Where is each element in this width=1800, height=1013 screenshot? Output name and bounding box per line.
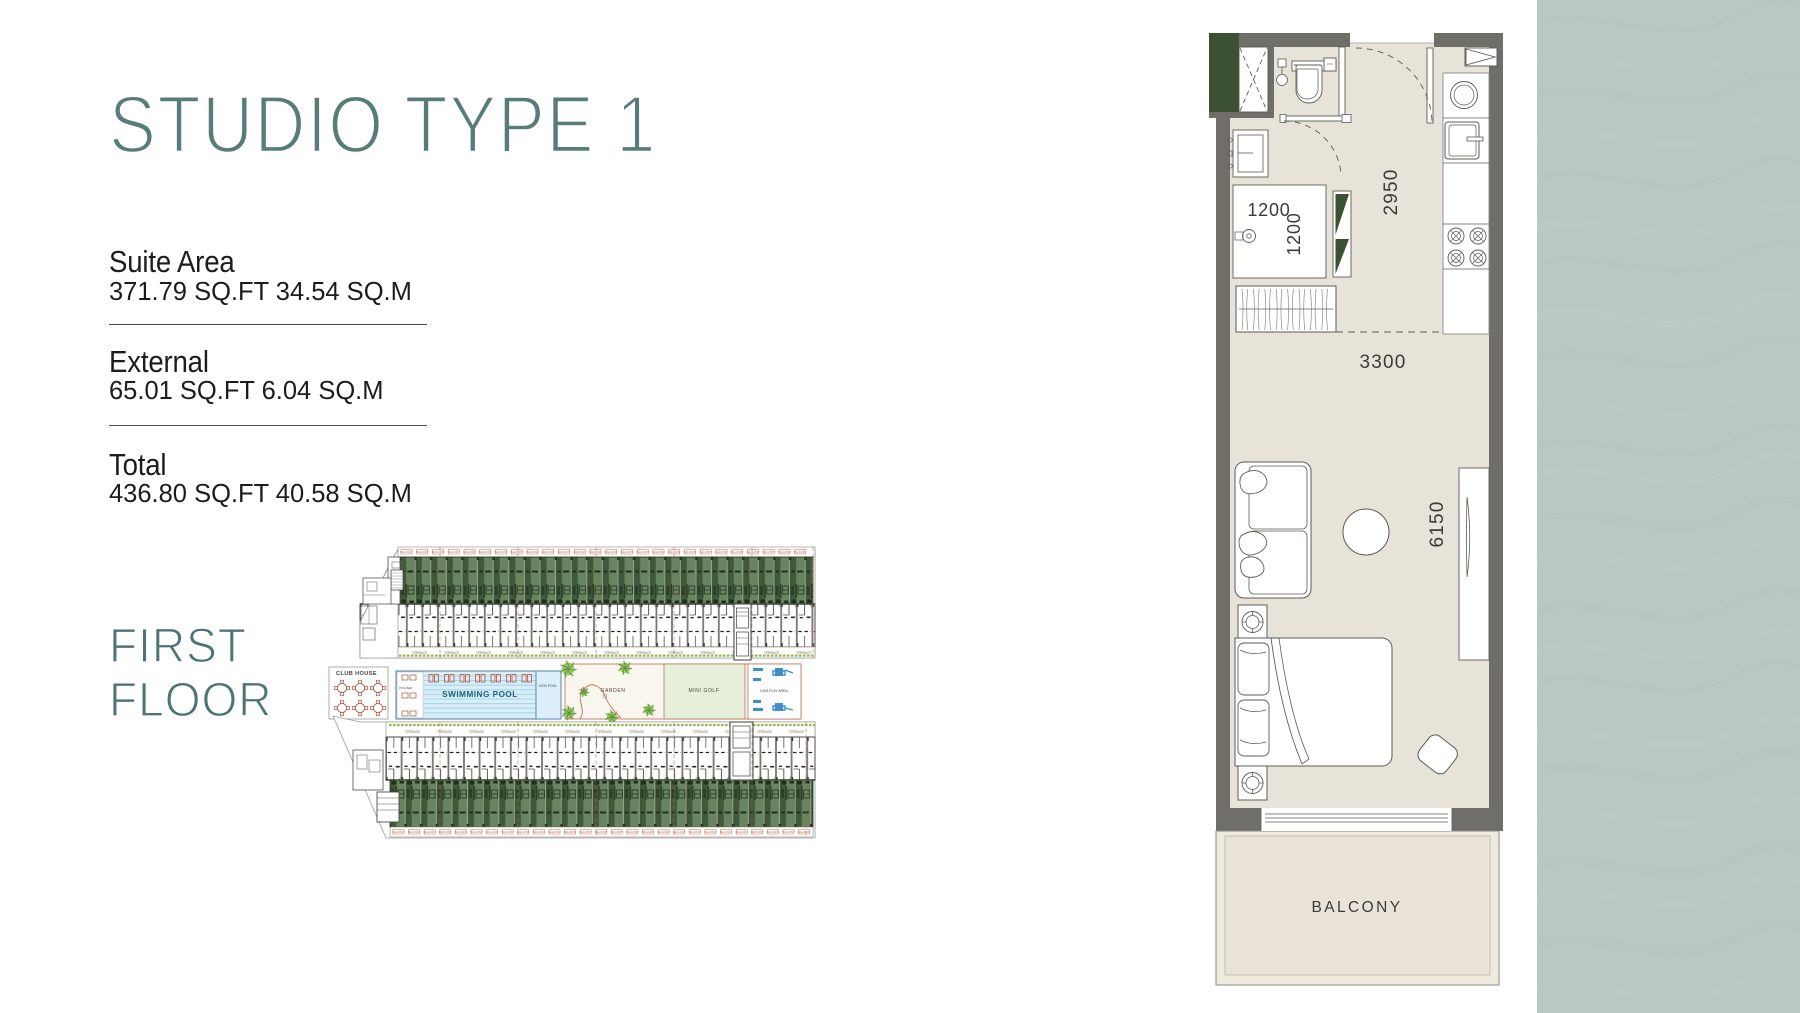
svg-text:BALCONY: BALCONY xyxy=(731,550,744,554)
svg-text:BALCONY: BALCONY xyxy=(1312,899,1403,916)
svg-text:TERRACE: TERRACE xyxy=(565,730,580,734)
svg-text:BALCONY: BALCONY xyxy=(778,550,791,554)
svg-text:BALCONY: BALCONY xyxy=(715,550,728,554)
svg-text:BALCONY: BALCONY xyxy=(704,830,717,834)
svg-text:TERRACE: TERRACE xyxy=(508,651,523,655)
svg-text:BALCONY: BALCONY xyxy=(657,830,670,834)
svg-text:SWIMMING POOL: SWIMMING POOL xyxy=(442,690,518,699)
svg-text:BALCONY: BALCONY xyxy=(589,550,602,554)
svg-text:BALCONY: BALCONY xyxy=(767,830,780,834)
svg-text:TERRACE: TERRACE xyxy=(437,730,452,734)
svg-text:TERRACE: TERRACE xyxy=(700,651,715,655)
svg-text:TERRACE: TERRACE xyxy=(764,651,779,655)
svg-text:BALCONY: BALCONY xyxy=(798,830,811,834)
svg-text:BALCONY: BALCONY xyxy=(611,830,624,834)
svg-text:BALCONY: BALCONY xyxy=(574,550,587,554)
svg-text:BALCONY: BALCONY xyxy=(548,830,561,834)
svg-text:6150: 6150 xyxy=(1427,500,1448,547)
svg-text:BALCONY: BALCONY xyxy=(637,550,650,554)
svg-text:BALCONY: BALCONY xyxy=(517,830,530,834)
svg-text:3300: 3300 xyxy=(1359,352,1406,373)
svg-text:BALCONY: BALCONY xyxy=(558,550,571,554)
svg-text:BALCONY: BALCONY xyxy=(439,830,452,834)
svg-text:TERRACE: TERRACE xyxy=(636,651,651,655)
svg-text:BALCONY: BALCONY xyxy=(794,550,807,554)
svg-text:KIDS POOL: KIDS POOL xyxy=(539,684,557,688)
svg-text:2950: 2950 xyxy=(1381,168,1402,215)
svg-text:BALCONY: BALCONY xyxy=(501,830,514,834)
svg-text:BALCONY: BALCONY xyxy=(564,830,577,834)
svg-text:BALCONY: BALCONY xyxy=(720,830,733,834)
svg-text:BALCONY: BALCONY xyxy=(626,830,639,834)
svg-text:BALCONY: BALCONY xyxy=(495,550,508,554)
svg-text:BALCONY: BALCONY xyxy=(621,550,634,554)
svg-text:BALCONY: BALCONY xyxy=(432,550,445,554)
svg-text:BALCONY: BALCONY xyxy=(735,830,748,834)
svg-text:TERRACE: TERRACE xyxy=(540,651,555,655)
svg-text:BALCONY: BALCONY xyxy=(448,550,461,554)
svg-text:BALCONY: BALCONY xyxy=(479,550,492,554)
svg-text:BALCONY: BALCONY xyxy=(486,830,499,834)
svg-text:BALCONY: BALCONY xyxy=(392,830,405,834)
svg-text:TERRACE: TERRACE xyxy=(629,730,644,734)
svg-text:BALCONY: BALCONY xyxy=(642,830,655,834)
svg-text:MINI GOLF: MINI GOLF xyxy=(689,688,720,694)
svg-text:BALCONY: BALCONY xyxy=(751,830,764,834)
svg-text:TERRACE: TERRACE xyxy=(693,730,708,734)
svg-text:TERRACE: TERRACE xyxy=(501,730,516,734)
svg-text:TERRACE: TERRACE xyxy=(597,730,612,734)
svg-text:BALCONY: BALCONY xyxy=(684,550,697,554)
svg-text:BALCONY: BALCONY xyxy=(463,550,476,554)
svg-text:BALCONY: BALCONY xyxy=(470,830,483,834)
svg-text:BALCONY: BALCONY xyxy=(400,550,413,554)
svg-text:TERRACE: TERRACE xyxy=(469,730,484,734)
svg-text:1200: 1200 xyxy=(1284,212,1304,255)
svg-text:BALCONY: BALCONY xyxy=(423,830,436,834)
svg-text:BALCONY: BALCONY xyxy=(526,550,539,554)
svg-text:TERRACE: TERRACE xyxy=(668,651,683,655)
svg-text:BALCONY: BALCONY xyxy=(511,550,524,554)
svg-text:TERRACE: TERRACE xyxy=(604,651,619,655)
svg-text:BALCONY: BALCONY xyxy=(408,830,421,834)
svg-text:TERRACE: TERRACE xyxy=(476,651,491,655)
svg-text:BALCONY: BALCONY xyxy=(455,830,468,834)
svg-text:BALCONY: BALCONY xyxy=(652,550,665,554)
svg-text:BALCONY: BALCONY xyxy=(416,550,429,554)
svg-text:BALCONY: BALCONY xyxy=(689,830,702,834)
svg-text:TERRACE: TERRACE xyxy=(572,651,587,655)
svg-text:BALCONY: BALCONY xyxy=(595,830,608,834)
svg-text:POOL BAR: POOL BAR xyxy=(399,686,412,690)
svg-text:BALCONY: BALCONY xyxy=(747,550,760,554)
svg-text:BALCONY: BALCONY xyxy=(579,830,592,834)
svg-text:BALCONY: BALCONY xyxy=(542,550,555,554)
svg-text:BALCONY: BALCONY xyxy=(782,830,795,834)
svg-text:BALCONY: BALCONY xyxy=(673,830,686,834)
svg-text:TERRACE: TERRACE xyxy=(757,730,772,734)
svg-text:TERRACE: TERRACE xyxy=(796,651,811,655)
svg-text:TERRACE: TERRACE xyxy=(444,651,459,655)
svg-text:BALCONY: BALCONY xyxy=(533,830,546,834)
svg-text:TERRACE: TERRACE xyxy=(405,730,420,734)
svg-text:TERRACE: TERRACE xyxy=(789,730,804,734)
svg-text:BALCONY: BALCONY xyxy=(605,550,618,554)
svg-text:TERRACE: TERRACE xyxy=(533,730,548,734)
svg-text:BALCONY: BALCONY xyxy=(700,550,713,554)
svg-text:TERRACE: TERRACE xyxy=(412,651,427,655)
svg-text:GARDEN: GARDEN xyxy=(601,688,626,694)
svg-text:CLUB HOUSE: CLUB HOUSE xyxy=(336,671,377,677)
svg-text:KIDS PLAY AREA: KIDS PLAY AREA xyxy=(760,689,788,693)
svg-text:BALCONY: BALCONY xyxy=(763,550,776,554)
